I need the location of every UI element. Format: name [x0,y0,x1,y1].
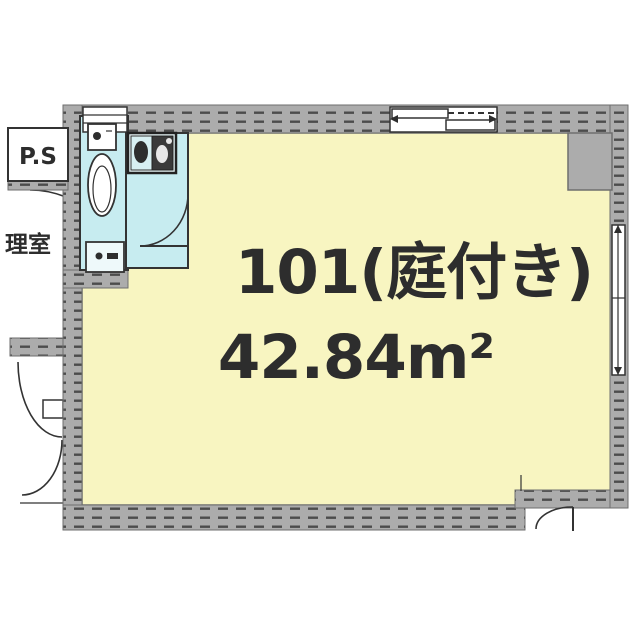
toilet-icon [88,124,116,216]
basin-icon [86,242,124,272]
wall-bottom [63,505,525,530]
entry-door-leaf [43,400,63,418]
wall-stub-entry [10,338,63,356]
corridor-label: 理室 [5,231,51,258]
column-notch [568,133,612,190]
window-top-sliding [390,107,497,132]
area-label: 42.84m² [218,322,494,393]
entry-door-arc-lower [22,440,62,495]
floor-plan: P.S 理室 101(庭付き) 42.84m² [0,0,630,630]
pipe-space-label: P.S [19,144,57,170]
wall-top [63,105,628,133]
floor-plan-drawing: P.S 理室 101(庭付き) 42.84m² [0,0,630,630]
kitchenette-icon [128,133,176,173]
unit-label: 101(庭付き) [235,237,593,308]
pipe-space-box: P.S [8,128,68,181]
window-right [612,225,625,375]
